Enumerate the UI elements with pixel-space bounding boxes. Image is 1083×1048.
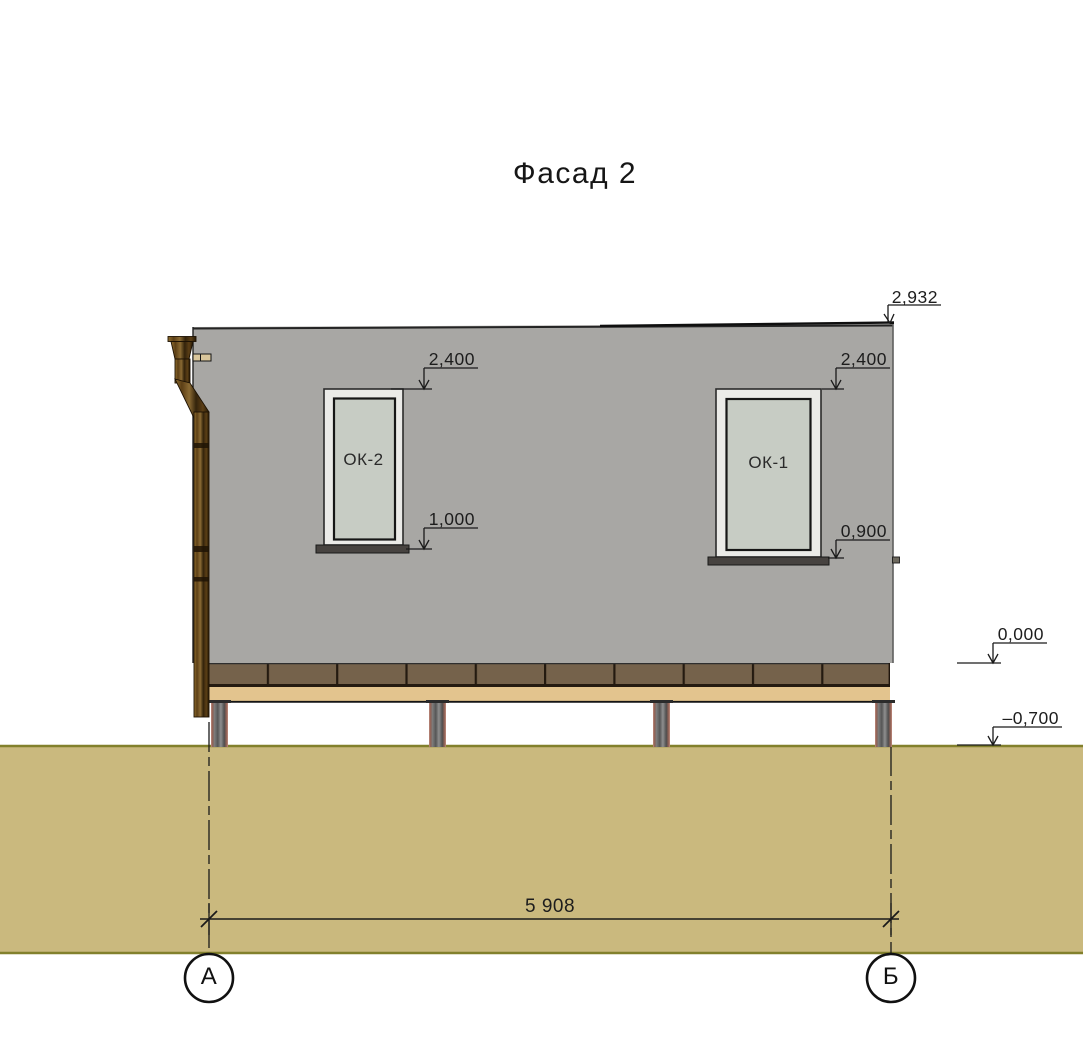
axis-label-b: Б [867, 963, 915, 991]
window-sill [708, 557, 829, 565]
window-ok2-label: ОК-2 [324, 450, 403, 470]
downpipe-lower [194, 412, 209, 717]
facade-drawing-canvas: Фасад 2 2,932 2,400 2,400 1,000 0,900 0,… [0, 0, 1083, 1048]
foundation-piles [208, 700, 895, 747]
drawing-title: Фасад 2 [455, 157, 695, 191]
window-glass [727, 399, 811, 550]
ok1-sill-elevation-label: 0,900 [816, 521, 887, 542]
ok1-head-elevation-label: 2,400 [816, 349, 887, 370]
ok2-sill-elevation-label: 1,000 [404, 509, 475, 530]
pile [650, 700, 673, 747]
roof-elevation-label: 2,932 [862, 287, 938, 308]
pile [208, 700, 231, 747]
leader-floor-level [957, 643, 1047, 663]
downpipe-funnel-cap [168, 337, 196, 342]
window-ok1-label: ОК-1 [716, 453, 821, 473]
ok2-head-elevation-label: 2,400 [404, 349, 475, 370]
window-sill [316, 545, 409, 553]
pile [426, 700, 449, 747]
window-ok1 [708, 389, 829, 565]
leader-ground-level [957, 727, 1062, 745]
axis-label-a: А [185, 963, 233, 991]
pile [872, 700, 895, 747]
downpipe-funnel [171, 342, 193, 360]
ground-level-label: –0,700 [978, 708, 1059, 729]
window-ok2 [316, 389, 409, 553]
tie-plate-right [893, 557, 900, 563]
foundation-beam [194, 687, 890, 702]
ground [0, 746, 1083, 954]
floor-level-label: 0,000 [972, 624, 1044, 645]
tie-plate-left [193, 354, 211, 361]
overall-width-dimension-label: 5 908 [489, 896, 611, 918]
